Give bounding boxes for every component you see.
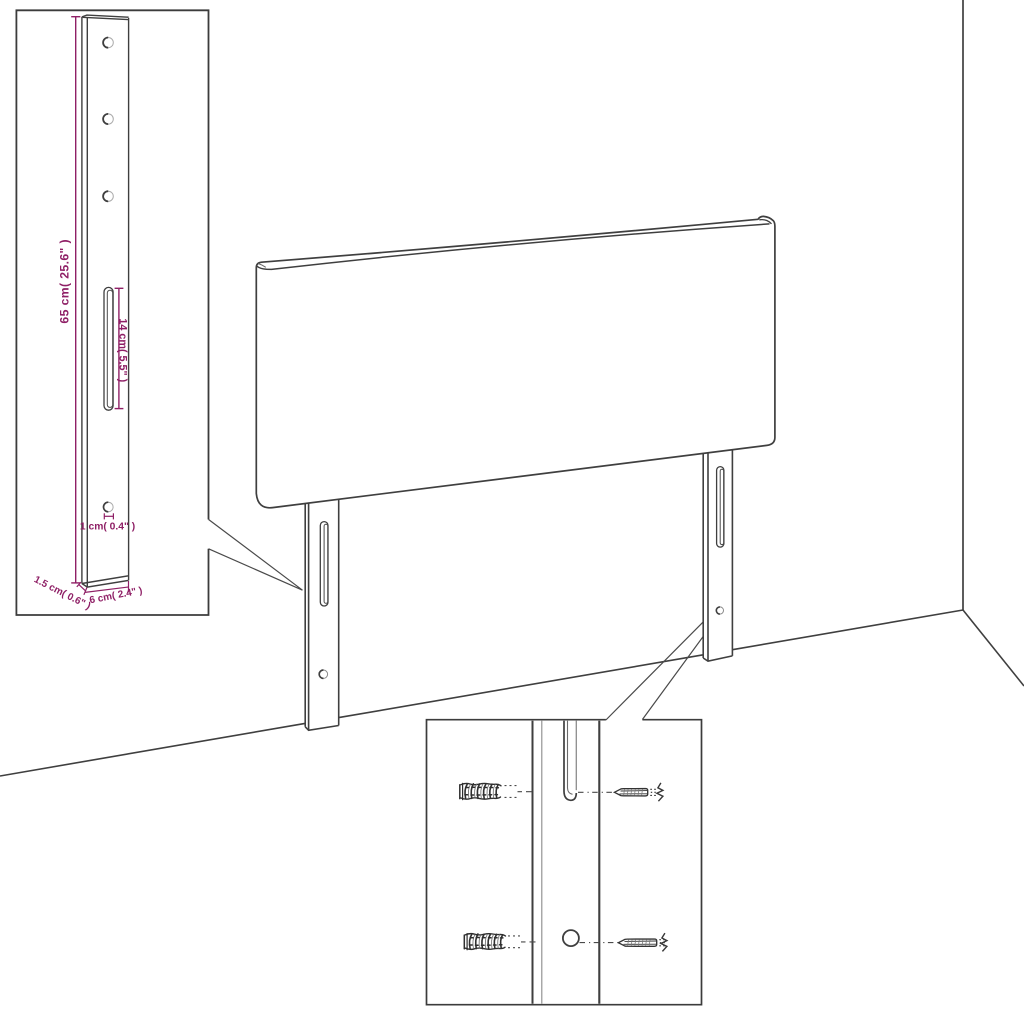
svg-text:1 cm( 0.4" ): 1 cm( 0.4" ) [80, 521, 135, 532]
svg-text:65 cm( 25.6" ): 65 cm( 25.6" ) [58, 239, 72, 324]
svg-text:14 cm( 5.5" ): 14 cm( 5.5" ) [116, 318, 128, 382]
